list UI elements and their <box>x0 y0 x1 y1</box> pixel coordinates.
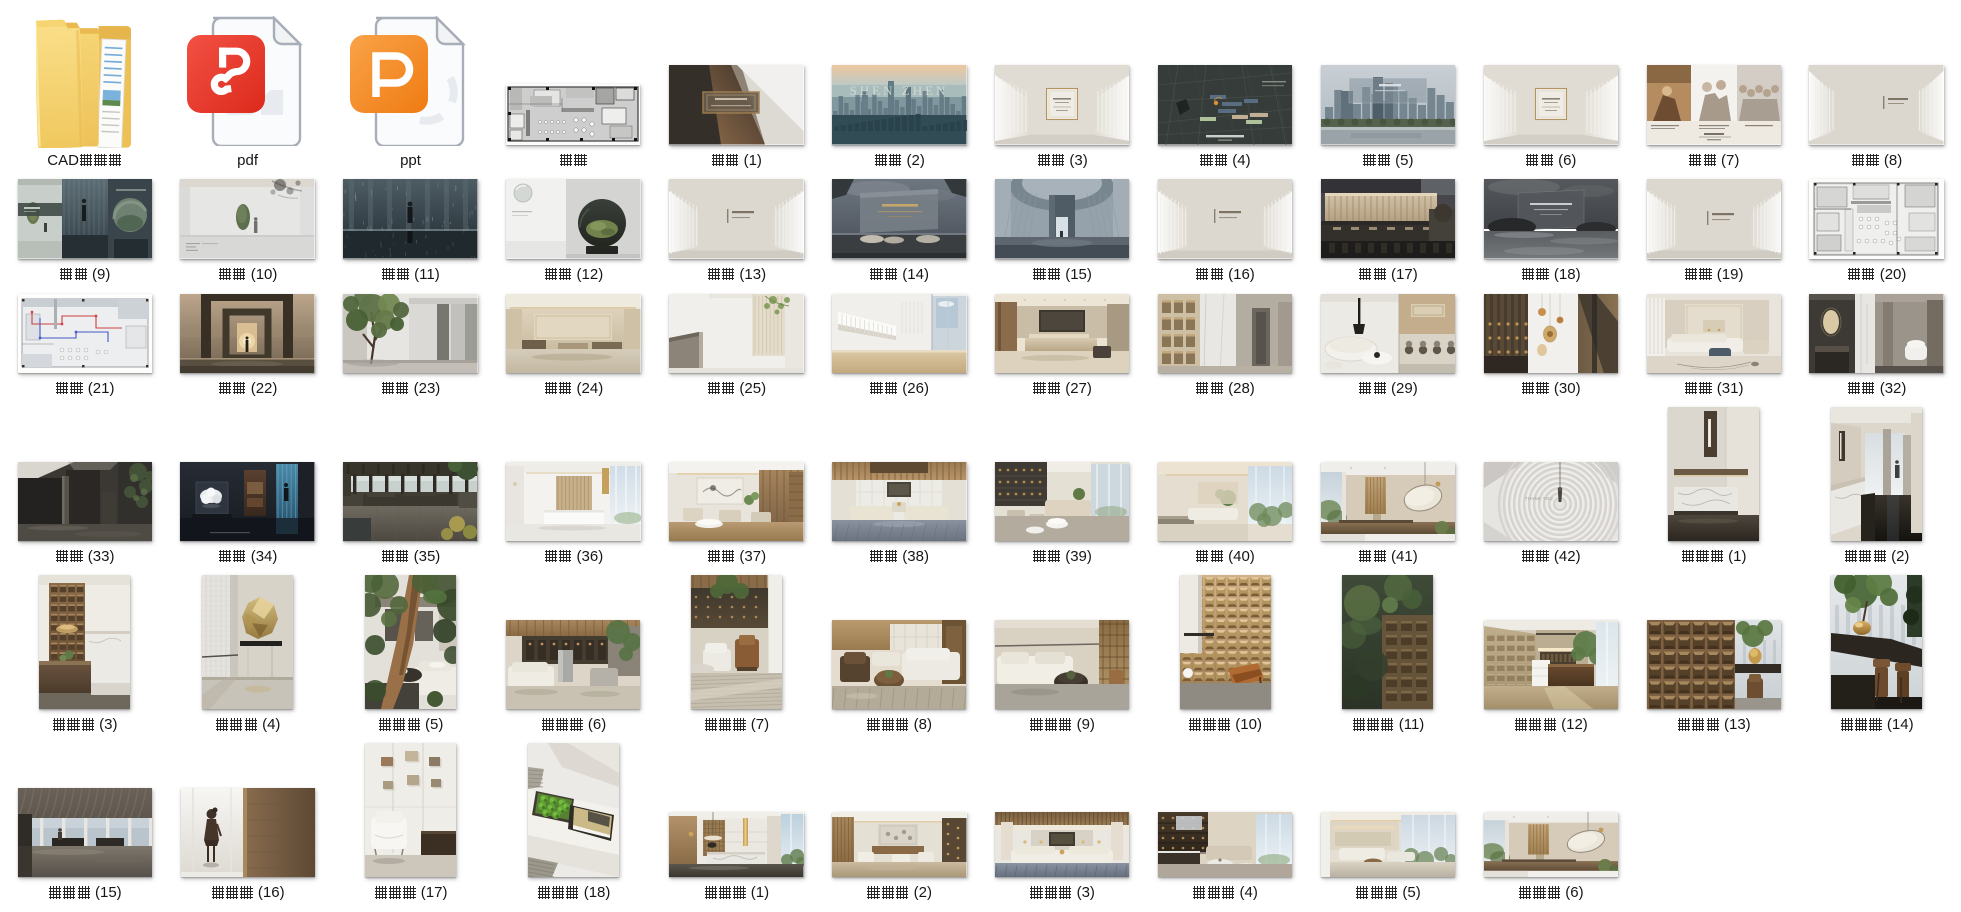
svg-text:SHEN ZHEN: SHEN ZHEN <box>850 83 949 98</box>
svg-text:THANK YOU: THANK YOU <box>1525 496 1553 501</box>
